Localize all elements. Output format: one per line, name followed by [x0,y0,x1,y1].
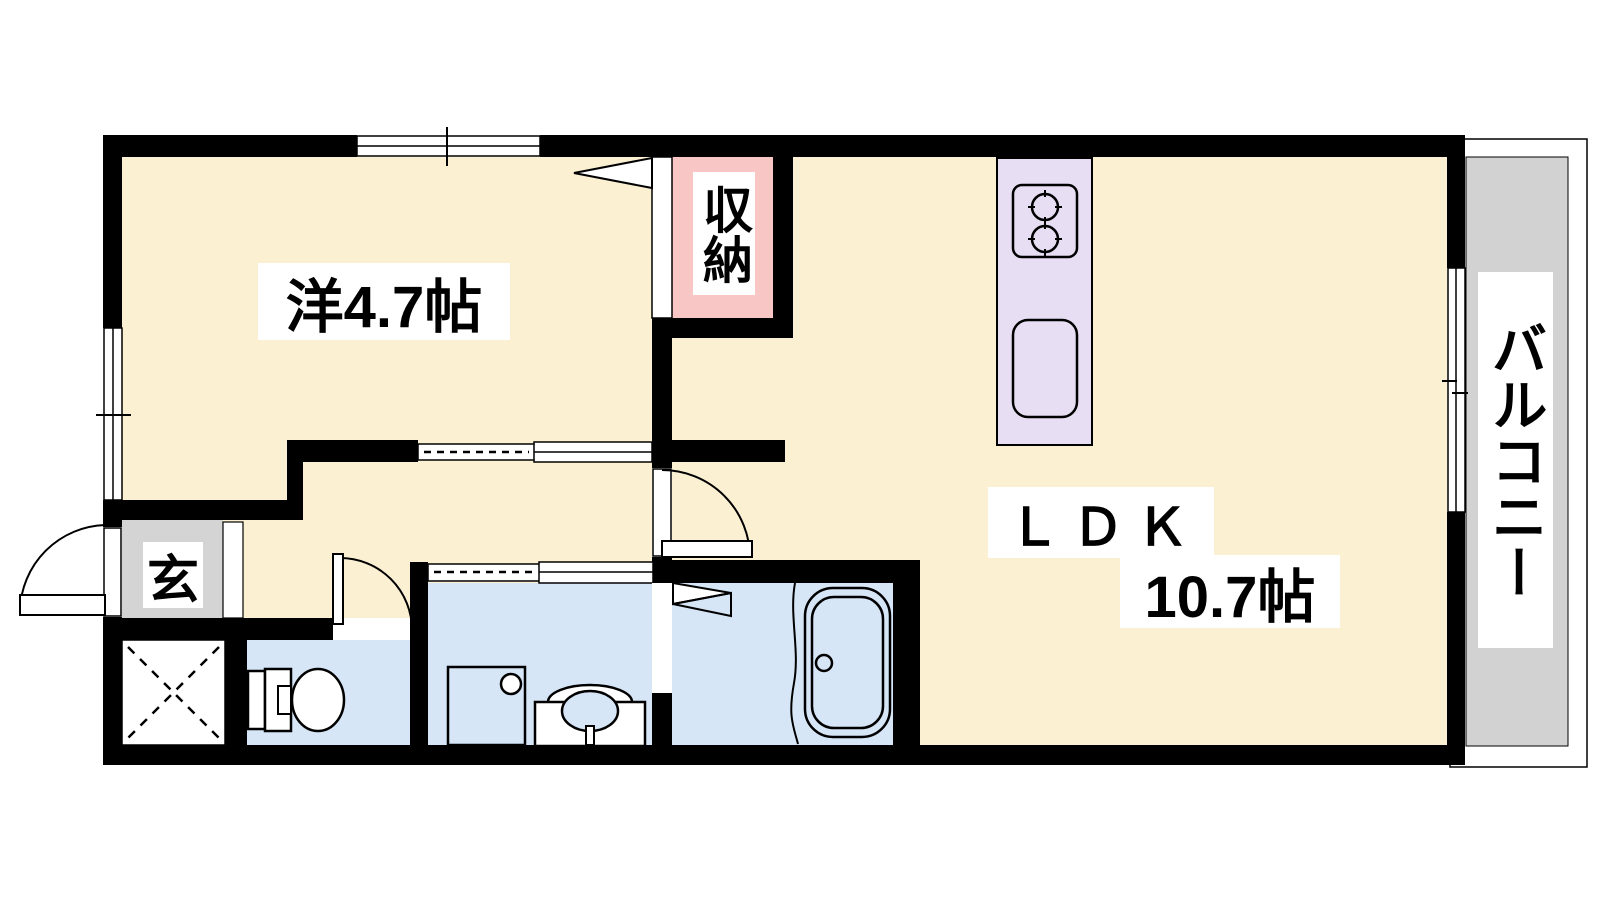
western-room-label-text: 洋4.7帖 [286,260,483,344]
sliding-door-washroom [428,562,653,583]
wall-top-right [540,135,1465,157]
toilet-door-leaf [333,554,343,624]
entrance-door-leaf [20,595,105,615]
ldk-door-leaf [662,541,752,557]
sliding-door-western [418,442,652,462]
wall-ldk-stub [672,440,785,462]
wall-hall-bottom [103,618,333,640]
western-room-label: 洋4.7帖 [258,263,510,340]
wall-bathroom-right [893,560,920,745]
wall-closet-right [773,135,793,338]
balcony-label: バルコニー [1478,272,1553,648]
entrance-door [20,525,122,617]
bathtub [791,583,890,744]
closet-label: 収納 [693,172,755,295]
entrance-label-text: 玄 [147,538,199,613]
kitchen-counter [997,158,1092,445]
wall-right-lower [1447,512,1465,765]
toilet-door-gap [333,618,410,640]
meter-box [122,640,225,745]
wall-bathroom-top [672,560,920,583]
floorplan-canvas: 洋4.7帖 ＬＤＫ 10.7帖 収納 バルコニー 玄 [0,0,1600,900]
wall-right-upper [1447,135,1465,268]
balcony-label-text: バルコニー [1475,320,1556,600]
wall-western-bottom-right [287,440,418,462]
entrance-step [223,522,243,618]
ldk-size-label-text: 10.7帖 [1145,550,1316,634]
kitchen-sink [1013,320,1077,417]
wall-closet-bottom [652,318,793,338]
entrance-label: 玄 [143,542,203,608]
floorplan-drawing [0,0,1600,900]
ldk-label: ＬＤＫ [988,487,1214,558]
wall-washbath-lower [652,693,672,745]
wall-left-upper [103,135,122,328]
vanity-basin [535,685,645,746]
wall-western-bottom-left [103,500,303,520]
closet-door-panel [652,157,672,318]
wall-mid-vertical [652,338,672,468]
bathtub-drain [816,655,832,671]
ldk-size-label: 10.7帖 [1120,555,1340,628]
wall-bottom [103,745,1465,765]
wall-washroom-left [410,562,428,745]
closet-label-text: 収納 [688,184,760,284]
wall-meterbox-right [225,640,247,745]
bathroom-door-gap [652,583,672,693]
wall-door-junction [652,555,672,583]
wall-top-left [103,135,357,157]
